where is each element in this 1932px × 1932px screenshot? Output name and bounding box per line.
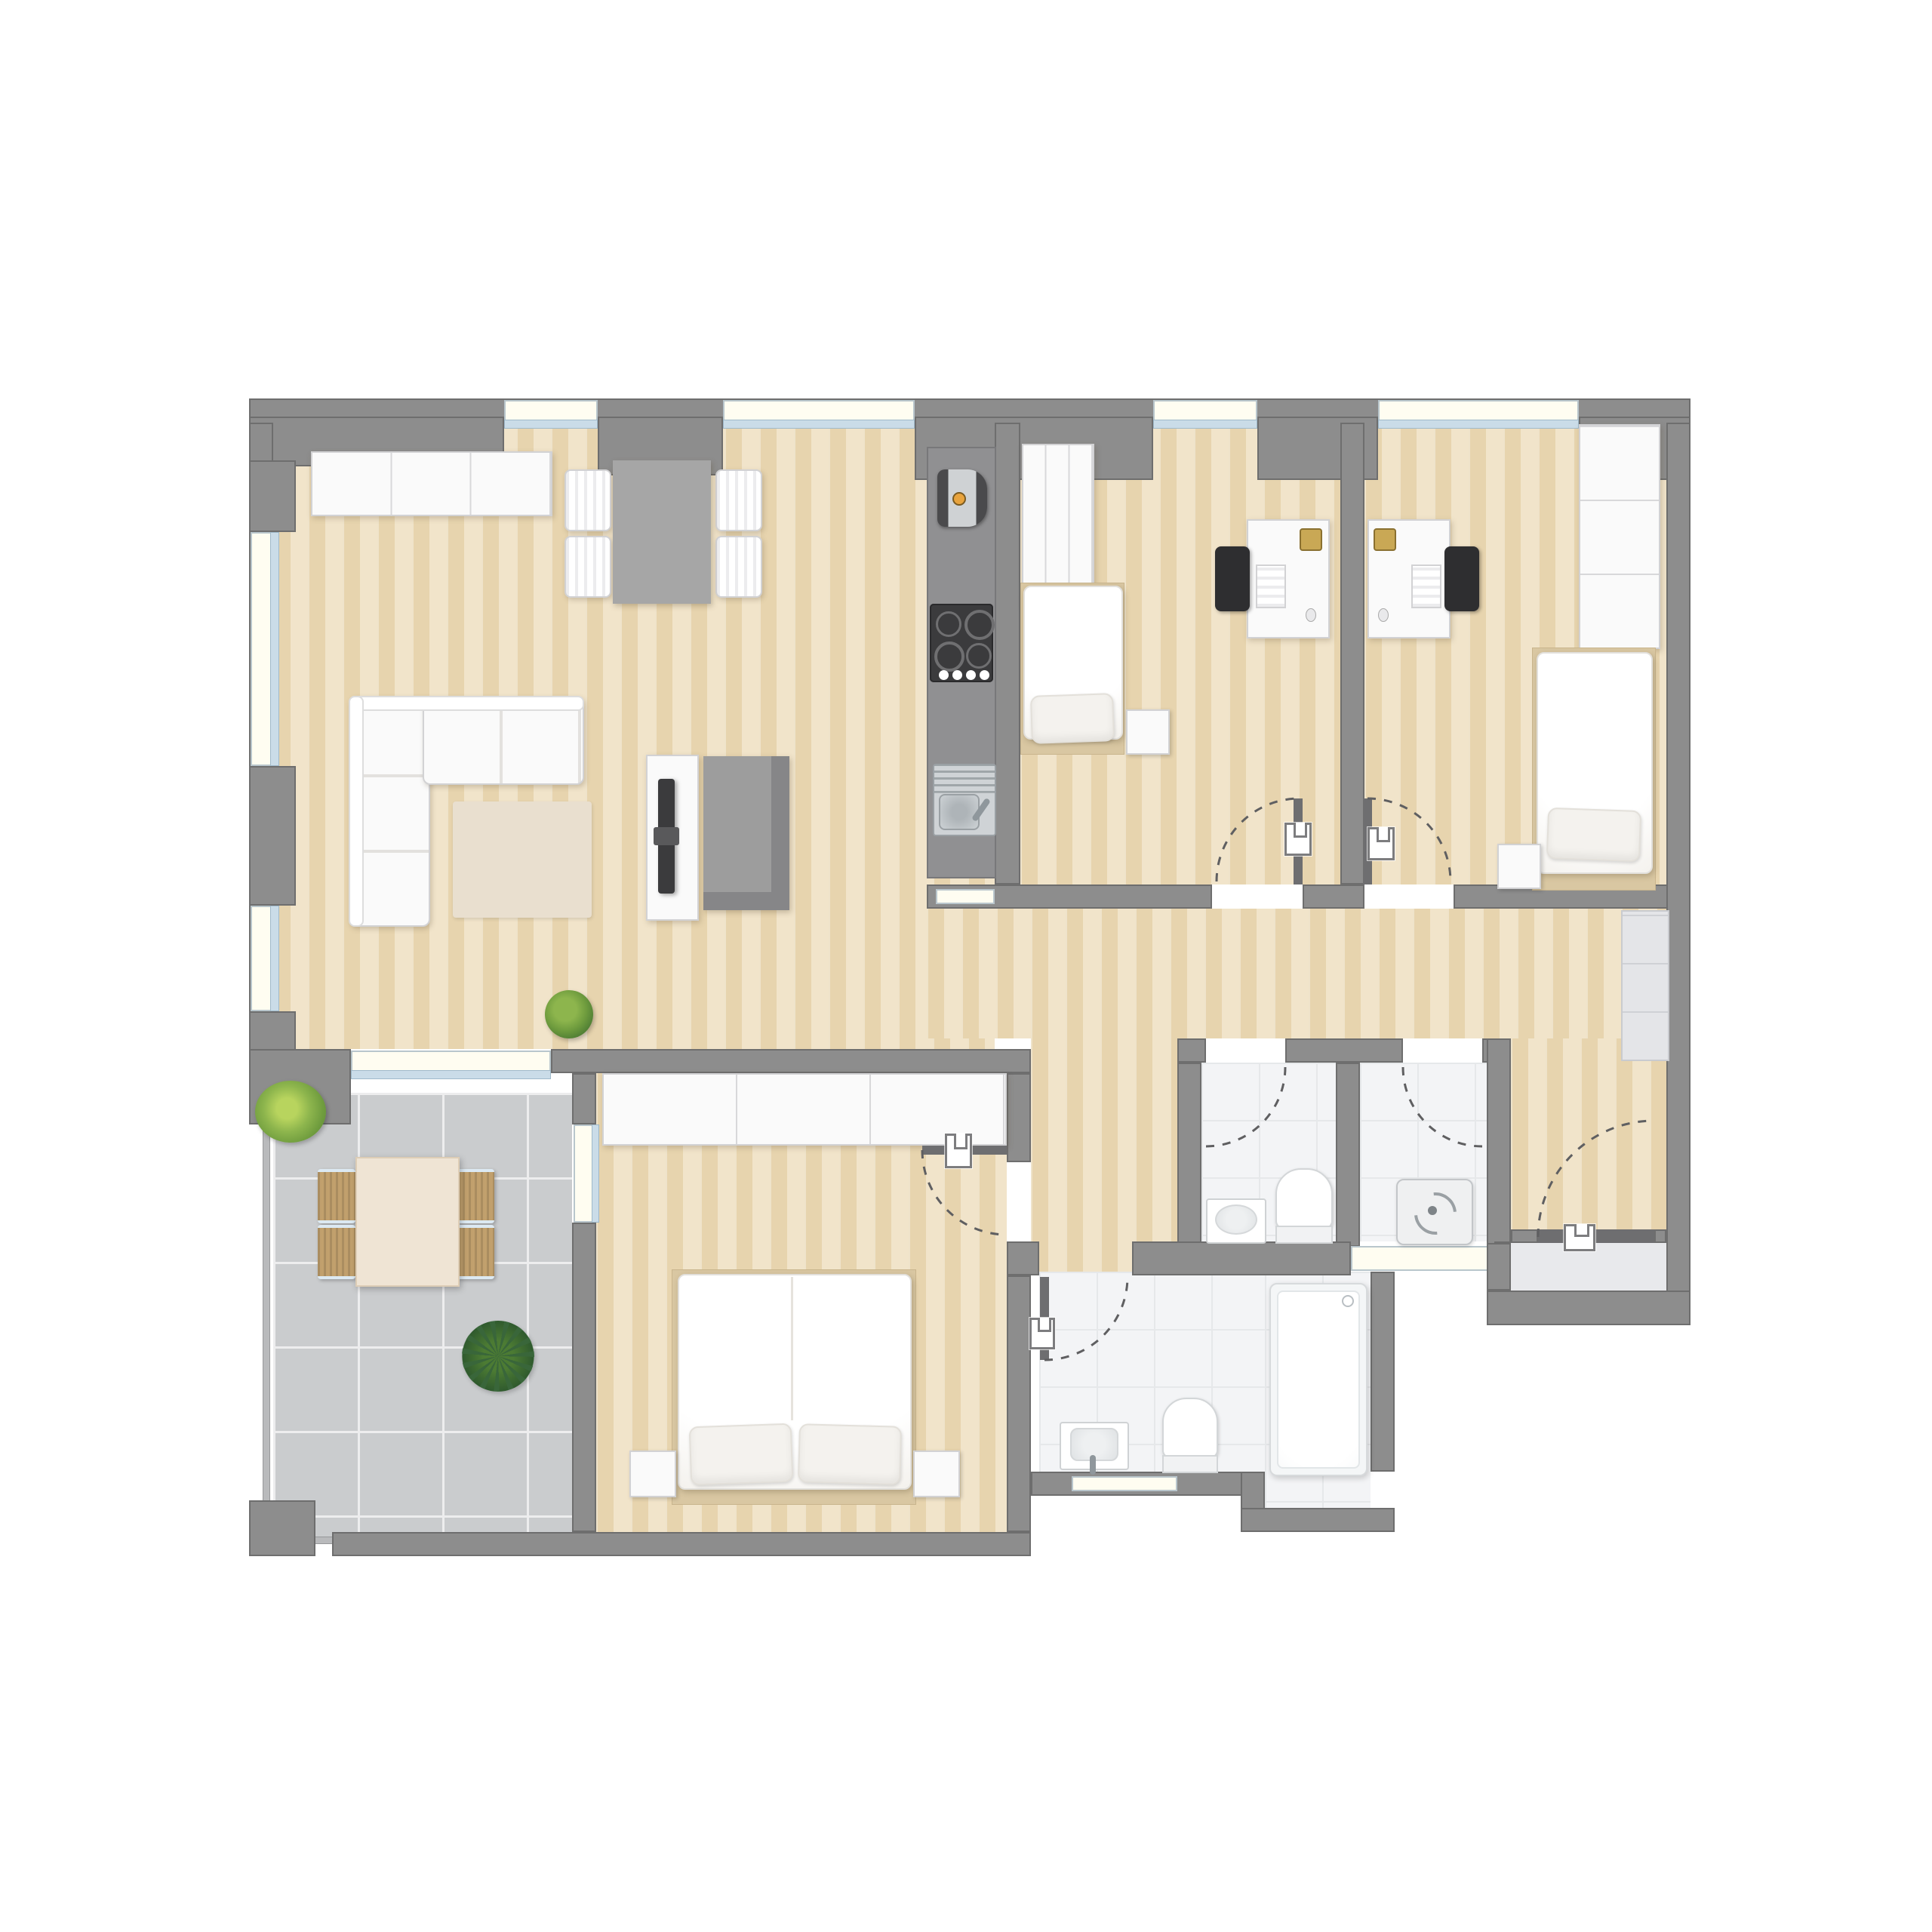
cooktop-knob <box>966 670 976 680</box>
dining-chair <box>565 536 611 598</box>
corridor-closet <box>1621 910 1669 1061</box>
terrace-parapet-left <box>263 1093 270 1544</box>
wall-wc-south-a <box>1007 1241 1039 1275</box>
wall-terrace-block-southwest <box>249 1500 315 1556</box>
master-nightstand-left <box>629 1451 676 1497</box>
wicker-chair <box>318 1169 355 1223</box>
bathroom-faucet <box>1090 1455 1096 1475</box>
kitchen-sink-basin <box>939 794 980 830</box>
bedroom2-office-chair <box>1444 546 1479 611</box>
wall-niche-kitchen <box>936 889 995 904</box>
wall-wc-north-b <box>1285 1038 1403 1063</box>
burner <box>934 641 964 672</box>
hallway-floor-south <box>1031 1038 1177 1275</box>
wicker-chair <box>457 1169 494 1223</box>
bedroom1-pillow <box>1030 693 1115 744</box>
wall-bedrooms-south-b <box>1303 884 1364 909</box>
window-bathroom-south <box>1072 1476 1177 1491</box>
bathroom-toilet <box>1162 1398 1218 1458</box>
rug <box>453 801 592 918</box>
wicker-chair <box>457 1225 494 1279</box>
wc-washbasin-bowl <box>1215 1204 1257 1235</box>
bedroom1-desk-lamp <box>1300 528 1322 551</box>
bedroom1-door-hinge <box>1284 823 1312 856</box>
window-top-1-sill <box>504 420 598 429</box>
entrance-door-hinge <box>1564 1224 1595 1251</box>
terrace-palm-plant <box>462 1321 534 1392</box>
bathroom-toilet-tank <box>1162 1455 1218 1473</box>
wall-south-main <box>332 1532 1031 1556</box>
sofa-back-edge-left <box>349 696 364 927</box>
bedroom2-desk-lamp <box>1374 528 1396 551</box>
wicker-chair <box>318 1225 355 1279</box>
wall-wc-north-a <box>1177 1038 1206 1063</box>
wall-entrance-post-left <box>1511 1229 1538 1243</box>
bathtub-inner <box>1277 1291 1360 1469</box>
bedroom2-keyboard <box>1411 565 1441 608</box>
sideboard <box>311 451 552 516</box>
bedroom2-door-hinge <box>1367 827 1395 860</box>
potted-plant <box>545 990 593 1038</box>
bedroom2-pillow <box>1546 808 1641 862</box>
wall-wc-west <box>1177 1063 1201 1247</box>
wall-bathroom-east <box>1371 1272 1395 1472</box>
wall-bathroom-south-b <box>1241 1508 1395 1532</box>
terrace-sliding-door <box>351 1051 551 1072</box>
cooktop-knob <box>980 670 989 680</box>
window-left-2 <box>251 906 272 1011</box>
master-pillow-left <box>689 1423 794 1486</box>
bedroom1-nightstand <box>1126 709 1170 755</box>
cooktop-knob <box>952 670 962 680</box>
coffee-machine-dot <box>952 492 966 506</box>
dining-chair <box>715 536 762 598</box>
terrace-sliding-door-sill <box>351 1070 551 1079</box>
bedroom2-nightstand <box>1497 844 1541 889</box>
terrace-bush-plant <box>255 1081 326 1143</box>
wall-bedroom-divider <box>1340 423 1364 884</box>
wc-toilet <box>1275 1168 1333 1229</box>
bathroom-door-hinge <box>1029 1318 1055 1349</box>
master-nightstand-right <box>913 1451 960 1497</box>
wc-toilet-tank <box>1275 1226 1333 1244</box>
dining-chair <box>565 469 611 531</box>
wall-pier-left-1 <box>249 460 296 532</box>
window-top-4-sill <box>1378 420 1579 429</box>
dining-table <box>613 460 711 604</box>
wall-right <box>1666 423 1690 1325</box>
window-utility-south <box>1351 1246 1494 1271</box>
window-top-3-sill <box>1153 420 1257 429</box>
floor-plan <box>0 0 1932 1932</box>
armchair-arm <box>703 892 789 910</box>
bedroom1-mouse <box>1306 608 1316 622</box>
wall-master-west-a <box>572 1073 596 1124</box>
tv-stand <box>654 827 679 845</box>
bedroom1-office-chair <box>1215 546 1250 611</box>
window-top-4 <box>1378 400 1579 421</box>
wall-living-south-b <box>551 1049 1031 1073</box>
wall-kitchen-bedroom1 <box>995 423 1020 884</box>
master-door-hinge <box>945 1134 972 1168</box>
washing-machine-dot <box>1428 1206 1437 1215</box>
wall-pier-left-2 <box>249 766 296 906</box>
cooktop-knob <box>939 670 949 680</box>
wall-wc-south-b <box>1132 1241 1351 1275</box>
wall-master-east-upper <box>1007 1073 1031 1162</box>
wall-wc-utility-divider <box>1336 1063 1360 1247</box>
wall-entrance-post-right <box>1654 1229 1666 1243</box>
window-top-1 <box>504 400 598 421</box>
window-left-2-sill <box>270 906 279 1011</box>
window-top-3 <box>1153 400 1257 421</box>
window-left-1 <box>251 532 272 766</box>
wall-master-west-b <box>572 1223 596 1532</box>
wall-vestibule-south <box>1487 1291 1690 1325</box>
hallway-floor <box>927 909 1690 1038</box>
bedroom2-wardrobe <box>1579 424 1660 649</box>
window-master-terrace-sill <box>592 1124 599 1223</box>
wall-vestibule-west <box>1487 1243 1511 1291</box>
window-left-1-sill <box>270 532 279 766</box>
bathtub-drain <box>1342 1295 1354 1307</box>
master-bed-crease <box>791 1277 793 1420</box>
outdoor-table <box>355 1157 460 1287</box>
entrance-door-leaf <box>1538 1229 1654 1243</box>
window-top-2 <box>723 400 915 421</box>
armchair-back <box>771 756 789 910</box>
burner <box>966 643 992 669</box>
bedroom1-keyboard <box>1256 565 1286 608</box>
dining-chair <box>715 469 762 531</box>
corridor-floor <box>1511 1038 1666 1243</box>
bedroom2-mouse <box>1378 608 1389 622</box>
window-top-2-sill <box>723 420 915 429</box>
burner <box>964 610 995 640</box>
sofa-back-edge <box>349 696 584 711</box>
master-pillow-right <box>798 1423 902 1485</box>
wall-master-east-lower <box>1007 1275 1031 1532</box>
burner <box>936 611 961 637</box>
